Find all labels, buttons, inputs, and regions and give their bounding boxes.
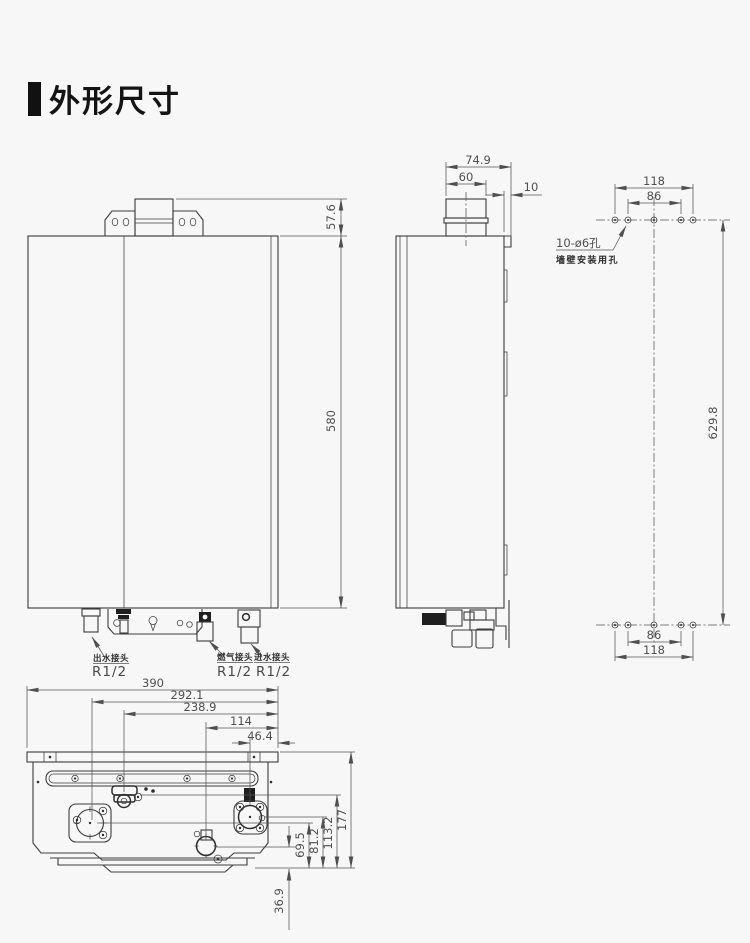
dim-bracket-height: 57.6 — [324, 204, 338, 230]
dim-total-depth: 177 — [335, 809, 349, 831]
front-right-hanging-bracket — [173, 211, 203, 236]
gas-label: 燃气接头 — [217, 652, 253, 663]
dim-inlet-x: 114 — [230, 714, 252, 728]
dim-mount-outer-top: 118 — [643, 174, 665, 188]
dim-gas-x: 46.4 — [247, 729, 273, 743]
front-left-hanging-bracket — [105, 211, 135, 236]
dim-inlet-y: 36.9 — [272, 888, 286, 914]
side-body — [396, 236, 504, 608]
dim-flue-span: 74.9 — [465, 153, 491, 167]
inlet-label: 进水接头 — [254, 652, 290, 663]
outlet-label: 出水接头 — [93, 653, 129, 664]
dim-mount-inner-bottom: 86 — [647, 628, 662, 642]
mount-hole-purpose: 墙壁安装用孔 — [556, 254, 619, 266]
bottom-clip-fitting — [112, 786, 155, 808]
water-inlet-fitting — [238, 610, 260, 643]
bottom-view: 390 292.1 238.9 114 46.4 69.5 — [27, 676, 355, 930]
dim-body-height: 580 — [324, 410, 338, 432]
bottom-vent-slot — [46, 771, 258, 786]
mount-hole-callout: 10-ø6孔 — [556, 236, 601, 250]
mount-pattern: 118 86 86 118 629.8 10-ø6孔 — [556, 174, 730, 661]
dim-total-width: 390 — [142, 676, 164, 690]
side-bottom-fittings — [422, 600, 509, 648]
dimension-drawing-page: 外形尺寸 — [0, 0, 750, 943]
bottom-back-rail — [27, 752, 278, 762]
outlet-thread: R1/2 — [92, 664, 127, 680]
front-view: 出水接头 R1/2 燃气接头 R1/2 进水接头 R1/2 57.6 — [28, 199, 347, 680]
technical-drawing: 出水接头 R1/2 燃气接头 R1/2 进水接头 R1/2 57.6 — [0, 0, 750, 943]
side-wall-bracket-step — [504, 236, 511, 247]
mount-note: 10-ø6孔 墙壁安装用孔 — [556, 226, 626, 266]
side-top-dims: 74.9 60 10 — [446, 153, 542, 238]
dim-mount-height: 629.8 — [706, 407, 720, 440]
dim-mount-outer-bottom: 118 — [643, 643, 665, 657]
power-cord-stub — [422, 613, 446, 625]
side-view: 74.9 60 10 — [396, 153, 542, 648]
dim-outlet-y: 69.5 — [293, 832, 307, 858]
connection-labels: 出水接头 R1/2 燃气接头 R1/2 进水接头 R1/2 — [92, 637, 291, 680]
dim-gas-y: 81.2 — [307, 828, 321, 854]
front-body — [28, 236, 278, 608]
front-top-flue — [135, 199, 173, 236]
inlet-thread: R1/2 — [256, 664, 291, 680]
side-top-flue — [444, 192, 488, 246]
dim-mount-inner-top: 86 — [647, 189, 662, 203]
gas-thread: R1/2 — [217, 664, 252, 680]
mount-height-dim: 629.8 — [706, 220, 723, 625]
gas-fitting — [197, 612, 213, 641]
mount-dims-bottom: 86 118 — [615, 628, 693, 661]
dim-flue-width: 60 — [459, 170, 474, 184]
drain-bolt — [116, 609, 131, 614]
bottom-body-outline — [33, 762, 268, 860]
dim-clip-y: 113.2 — [321, 817, 335, 850]
bottom-depth-dims: 69.5 81.2 113.2 177 36.9 — [97, 752, 355, 930]
mount-dims-top: 118 86 — [615, 174, 693, 214]
dim-clip-x: 238.9 — [184, 700, 217, 714]
dim-wall-gap: 10 — [524, 180, 539, 194]
front-bottom-bracket — [108, 609, 202, 634]
water-outlet-fitting — [82, 609, 100, 632]
front-height-dims: 57.6 580 — [176, 199, 347, 608]
